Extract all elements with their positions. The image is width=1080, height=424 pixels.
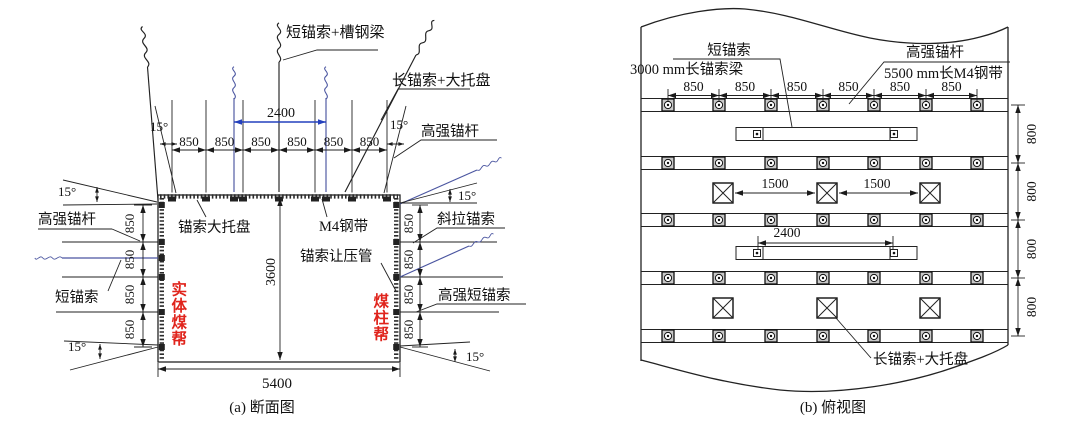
dim-arrowhead bbox=[158, 366, 166, 371]
bolt-center bbox=[718, 335, 720, 337]
caption-section-a: (a) 断面图 bbox=[229, 399, 294, 416]
cable-squiggle bbox=[415, 20, 436, 56]
cable-squiggle bbox=[325, 67, 328, 99]
label-yield-tube: 锚索让压管 bbox=[300, 248, 373, 265]
dim-arrowhead bbox=[318, 119, 326, 124]
leader bbox=[381, 89, 470, 120]
bolt-center bbox=[770, 219, 772, 221]
figure-roadway-support: 2400 850 850 850 850 850 850 15° 15° bbox=[0, 0, 1080, 424]
dim-2400-label: 2400 bbox=[774, 225, 801, 240]
dim-arrowhead bbox=[417, 234, 422, 242]
bolt-center bbox=[925, 277, 927, 279]
dim-arrowhead bbox=[140, 242, 145, 250]
dim-arrowhead bbox=[1015, 163, 1020, 171]
bolt-center bbox=[667, 277, 669, 279]
bolt-center bbox=[822, 162, 824, 164]
dim-arrowhead bbox=[352, 147, 360, 152]
dim-800: 800 bbox=[1024, 239, 1039, 260]
bolt-center bbox=[770, 162, 772, 164]
dim-850: 850 bbox=[179, 134, 199, 149]
cable-squiggle bbox=[233, 67, 236, 99]
dim-arrowhead bbox=[387, 142, 393, 146]
dim-arrowhead bbox=[417, 242, 422, 250]
label-pillar-wall: 煤柱帮 bbox=[371, 293, 387, 343]
dim-850: 850 bbox=[122, 320, 137, 340]
label-hs-short-cable: 高强短锚索 bbox=[438, 287, 511, 304]
label-short-cable: 短锚索 bbox=[55, 289, 99, 306]
bolt-center bbox=[667, 162, 669, 164]
dim-arrowhead bbox=[874, 93, 882, 98]
left-wall-bolts bbox=[35, 180, 158, 370]
label-long-cable-tray: 长锚索+大托盘 bbox=[392, 71, 490, 89]
dim-arrowhead bbox=[417, 269, 422, 277]
anchor-plate bbox=[230, 197, 238, 202]
dim-850: 850 bbox=[735, 79, 756, 94]
dim-arrowhead bbox=[758, 240, 766, 245]
dim-arrowhead bbox=[1015, 220, 1020, 228]
dim-850: 850 bbox=[324, 134, 344, 149]
dim-800: 800 bbox=[1024, 181, 1039, 202]
anchor-plate bbox=[383, 197, 391, 202]
dim-arrowhead bbox=[815, 93, 823, 98]
dim-arrowhead bbox=[417, 205, 422, 213]
label-cable-tray: 锚索大托盘 bbox=[178, 218, 251, 236]
leader bbox=[197, 200, 206, 217]
dim-arrowhead bbox=[926, 93, 934, 98]
bolt-center bbox=[667, 219, 669, 221]
label-plan-cable-beam: 3000 mm长锚索梁 bbox=[630, 61, 743, 78]
label-plan-bolt: 高强锚杆 bbox=[906, 44, 964, 61]
label-solid-coal-wall: 实体煤帮 bbox=[169, 281, 185, 347]
anchor-plate bbox=[202, 197, 210, 202]
anchor-plate bbox=[275, 197, 283, 202]
dim-arrowhead bbox=[823, 93, 831, 98]
dim-850: 850 bbox=[287, 134, 307, 149]
dim-850: 850 bbox=[215, 134, 235, 149]
bolt-center bbox=[770, 335, 772, 337]
dim-arrowhead bbox=[1015, 270, 1020, 278]
dim-arrowhead bbox=[417, 277, 422, 285]
dim-arrowhead bbox=[1015, 328, 1020, 336]
anchor-plate bbox=[159, 309, 165, 315]
anchor-plate bbox=[393, 202, 399, 208]
plan-top-break-line bbox=[641, 9, 1008, 44]
dim-850: 850 bbox=[401, 250, 416, 270]
dim-arrowhead bbox=[271, 147, 279, 152]
dim-arrowhead bbox=[206, 147, 214, 152]
anchor-plate bbox=[159, 344, 165, 350]
plan-row-spacing-dims: 800 800 800 800 bbox=[1011, 105, 1039, 336]
dim-arrowhead bbox=[235, 147, 243, 152]
bolt-center bbox=[718, 104, 720, 106]
right-spacing-dims: 850 850 850 850 bbox=[401, 205, 428, 347]
anchor-plate bbox=[311, 197, 319, 202]
dim-arrowhead bbox=[160, 142, 166, 146]
anchor-plate bbox=[393, 239, 399, 245]
anchor-cable-beam-1 bbox=[736, 128, 917, 141]
dim-arrowhead bbox=[807, 190, 815, 195]
dim-800: 800 bbox=[1024, 297, 1039, 318]
label-diag-cable: 斜拉锚索 bbox=[437, 211, 495, 228]
dim-arrowhead bbox=[885, 240, 893, 245]
bolt-center bbox=[976, 219, 978, 221]
bolt-center bbox=[667, 335, 669, 337]
dim-800: 800 bbox=[1024, 124, 1039, 145]
dim-850: 850 bbox=[838, 79, 859, 94]
dim-arrowhead bbox=[918, 93, 926, 98]
dim-850: 850 bbox=[401, 285, 416, 305]
bolt-center bbox=[976, 335, 978, 337]
section-a-cross-section: 2400 850 850 850 850 850 850 15° 15° bbox=[35, 20, 526, 416]
dim-850: 850 bbox=[251, 134, 271, 149]
bolt-center bbox=[925, 162, 927, 164]
dim-5400-label: 5400 bbox=[262, 376, 292, 392]
dim-arrowhead bbox=[198, 147, 206, 152]
dim-arrowhead bbox=[98, 344, 102, 350]
dim-arrowhead bbox=[234, 119, 242, 124]
dim-850: 850 bbox=[683, 79, 704, 94]
dim-arrowhead bbox=[140, 269, 145, 277]
dim-arrowhead bbox=[140, 304, 145, 312]
dim-arrowhead bbox=[417, 339, 422, 347]
bolt-center bbox=[976, 104, 978, 106]
angle-15-label: 15° bbox=[58, 184, 76, 199]
bolt-center bbox=[873, 104, 875, 106]
anchor-plate bbox=[239, 197, 247, 202]
dim-arrowhead bbox=[172, 147, 180, 152]
angle-15-label: 15° bbox=[466, 349, 484, 364]
angle-15-label: 15° bbox=[458, 188, 476, 203]
left-spacing-dims: 850 850 850 850 bbox=[122, 205, 152, 347]
label-roof-cable-beam: 短锚索+槽钢梁 bbox=[286, 24, 384, 41]
anchor-plate bbox=[348, 197, 356, 202]
leader bbox=[416, 304, 526, 312]
dim-850: 850 bbox=[787, 79, 808, 94]
label-plan-m4-belt: 5500 mm长M4钢带 bbox=[884, 65, 1003, 82]
dim-850: 850 bbox=[122, 285, 137, 305]
bolt-center bbox=[925, 219, 927, 221]
dim-arrowhead bbox=[1015, 155, 1020, 163]
anchor-plate bbox=[393, 309, 399, 315]
leader bbox=[413, 228, 505, 243]
dim-arrowhead bbox=[1015, 212, 1020, 220]
anchor-plate bbox=[159, 274, 165, 280]
dim-arrowhead bbox=[417, 312, 422, 320]
leader bbox=[394, 140, 497, 158]
label-plan-long-cable-tray: 长锚索+大托盘 bbox=[873, 350, 968, 368]
bolt-center bbox=[873, 162, 875, 164]
label-plan-short-cable: 短锚索 bbox=[707, 42, 751, 59]
bolt-center bbox=[873, 277, 875, 279]
dim-arrowhead bbox=[140, 277, 145, 285]
bolt-center bbox=[822, 335, 824, 337]
bolt-center bbox=[873, 335, 875, 337]
bolt-center bbox=[925, 104, 927, 106]
anchor-plate bbox=[159, 255, 165, 261]
angle-15-label: 15° bbox=[150, 119, 168, 134]
anchor-plate bbox=[159, 202, 165, 208]
caption-section-b: (b) 俯视图 bbox=[800, 399, 866, 416]
anchor-plate bbox=[393, 344, 399, 350]
dim-arrowhead bbox=[969, 93, 977, 98]
dim-arrowhead bbox=[140, 339, 145, 347]
bolt-center bbox=[925, 335, 927, 337]
dim-arrowhead bbox=[771, 93, 779, 98]
bolt-center bbox=[667, 104, 669, 106]
anchor-plate bbox=[322, 197, 330, 202]
bolt-center bbox=[718, 219, 720, 221]
dim-1500: 1500 bbox=[864, 176, 891, 191]
dim-arrowhead bbox=[140, 312, 145, 320]
anchor-plate bbox=[393, 274, 399, 280]
dim-850: 850 bbox=[401, 320, 416, 340]
dim-arrowhead bbox=[392, 366, 400, 371]
dim-arrowhead bbox=[735, 190, 743, 195]
section-b-plan-view: 850 850 850 850 850 850 800 800 800 800 bbox=[630, 9, 1039, 416]
bolt-center bbox=[822, 277, 824, 279]
dim-arrowhead bbox=[140, 205, 145, 213]
dim-850: 850 bbox=[122, 250, 137, 270]
dim-arrowhead bbox=[719, 93, 727, 98]
dim-arrowhead bbox=[140, 234, 145, 242]
dim-arrowhead bbox=[1015, 105, 1020, 113]
label-bolt-right: 高强锚杆 bbox=[421, 123, 479, 140]
anchor-cable-beam-2 bbox=[736, 247, 917, 260]
bolt-center bbox=[770, 104, 772, 106]
dim-arrowhead bbox=[171, 142, 177, 146]
cable-squiggle bbox=[141, 26, 149, 67]
dim-arrowhead bbox=[910, 190, 918, 195]
dim-1500: 1500 bbox=[762, 176, 789, 191]
bolt-center bbox=[873, 219, 875, 221]
dim-850: 850 bbox=[401, 214, 416, 234]
cable-squiggle bbox=[277, 23, 280, 62]
dim-arrowhead bbox=[307, 147, 315, 152]
bolt-center bbox=[822, 104, 824, 106]
bolt-center bbox=[976, 162, 978, 164]
dim-arrowhead bbox=[344, 147, 352, 152]
bolt-center bbox=[976, 277, 978, 279]
angle-15-label: 15° bbox=[390, 117, 408, 132]
plan-top-spacing-dims: 850 850 850 850 850 850 bbox=[668, 79, 977, 101]
dim-arrowhead bbox=[839, 190, 847, 195]
dim-arrowhead bbox=[315, 147, 323, 152]
dim-arrowhead bbox=[711, 93, 719, 98]
plan-beam-span-dim: 2400 bbox=[758, 225, 893, 249]
angle-15-label: 15° bbox=[68, 339, 86, 354]
leader bbox=[836, 318, 871, 358]
dim-arrowhead bbox=[448, 196, 452, 202]
dim-arrowhead bbox=[98, 353, 102, 359]
dim-arrowhead bbox=[668, 93, 676, 98]
dim-arrowhead bbox=[277, 352, 282, 360]
dim-arrowhead bbox=[453, 349, 457, 355]
dim-arrowhead bbox=[279, 147, 287, 152]
leader bbox=[283, 50, 378, 60]
label-bolt-left: 高强锚杆 bbox=[38, 211, 96, 228]
dim-3600-label: 3600 bbox=[264, 258, 279, 286]
dim-850: 850 bbox=[360, 134, 380, 149]
anchor-plate bbox=[168, 197, 176, 202]
label-m4-belt: M4钢带 bbox=[319, 218, 368, 235]
dim-arrowhead bbox=[398, 142, 404, 146]
dim-arrowhead bbox=[243, 147, 251, 152]
leader bbox=[108, 260, 121, 291]
bolt-center bbox=[718, 162, 720, 164]
diagram-canvas: 2400 850 850 850 850 850 850 15° 15° bbox=[0, 0, 1080, 424]
dim-arrowhead bbox=[866, 93, 874, 98]
leader bbox=[322, 199, 327, 217]
anchor-plate bbox=[159, 239, 165, 245]
dim-arrowhead bbox=[95, 196, 99, 202]
dim-arrowhead bbox=[1015, 278, 1020, 286]
bolt-center bbox=[822, 219, 824, 221]
dim-2400-label: 2400 bbox=[267, 106, 295, 121]
bolt-center bbox=[718, 277, 720, 279]
dim-850: 850 bbox=[122, 214, 137, 234]
dim-arrowhead bbox=[763, 93, 771, 98]
bolt-center bbox=[770, 277, 772, 279]
dim-arrowhead bbox=[379, 147, 387, 152]
